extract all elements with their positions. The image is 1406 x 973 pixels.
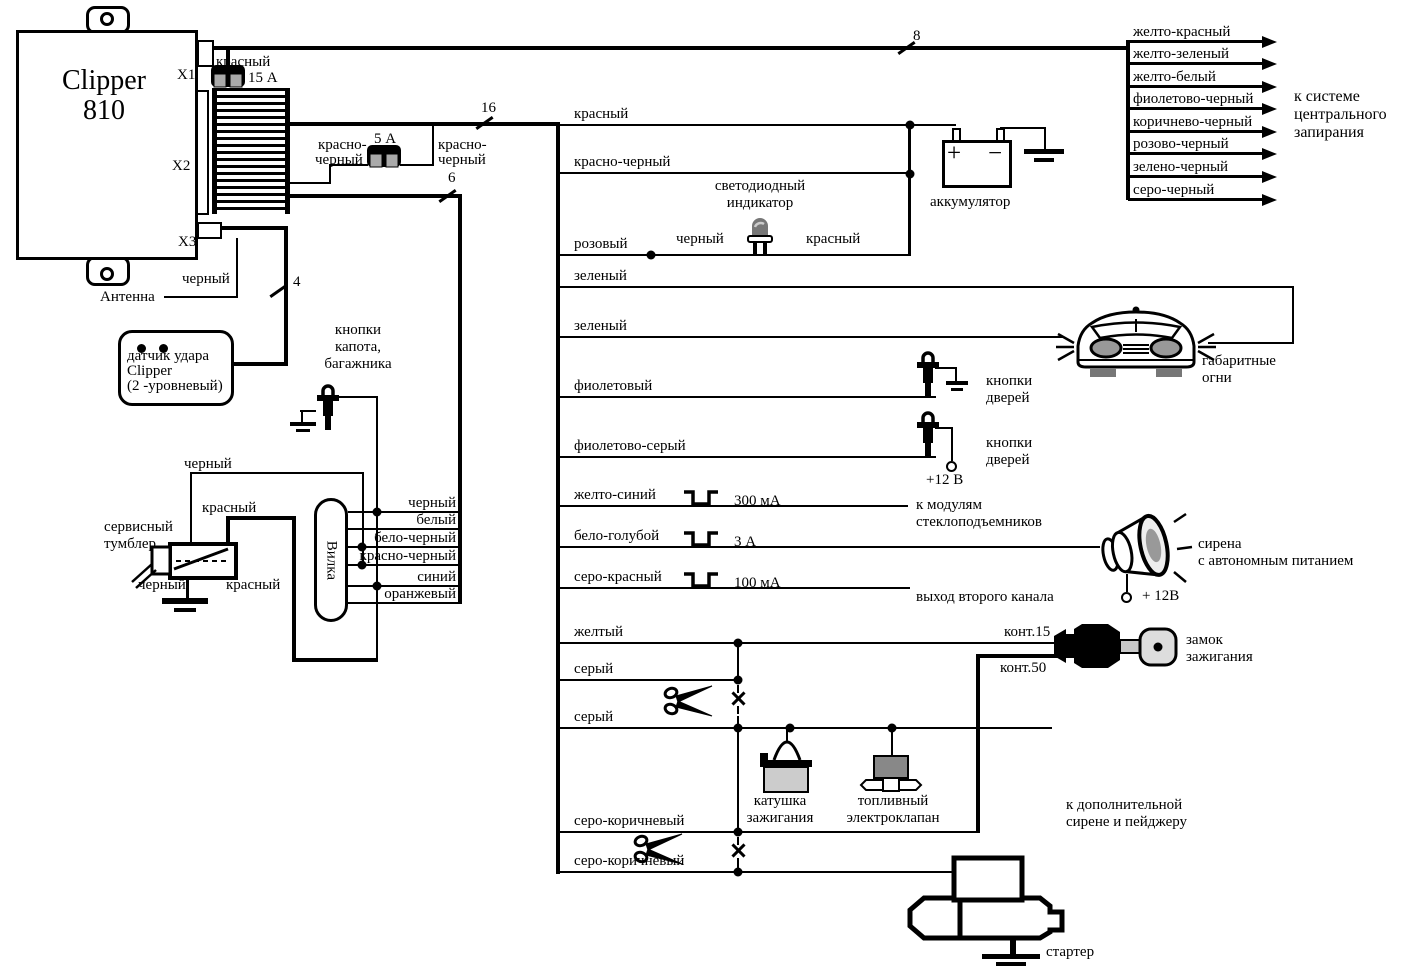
wire-red-black [558, 172, 910, 174]
ribbon-cable-icon [212, 88, 290, 214]
wire-label: черный [315, 152, 363, 169]
windows-label: стеклоподъемников [916, 514, 1042, 531]
wire-label: серый [574, 709, 613, 726]
wire-label: белый [348, 512, 456, 529]
door-buttons-label: кнопки [986, 435, 1032, 452]
wire-label-red: красный [202, 500, 256, 517]
siren-label: с автономным питанием [1198, 553, 1353, 570]
central-lock-label: к системе [1294, 88, 1360, 106]
pulse-icon [682, 530, 722, 548]
arrow-icon [1262, 58, 1277, 70]
door-switch-icon [915, 411, 941, 457]
wire-segment [292, 516, 296, 662]
battery-plus: + [947, 140, 961, 168]
siren-icon [1092, 512, 1196, 600]
fuse-icon [210, 62, 246, 92]
ground-icon [1024, 149, 1064, 154]
wire-label: фиолетово-серый [574, 438, 686, 455]
windows-label: к модулям [916, 497, 982, 514]
wire-red [558, 124, 956, 126]
arrow-icon [1262, 126, 1277, 138]
wire-segment [190, 472, 192, 544]
wire-segment [955, 367, 957, 381]
wire-label: желто-зеленый [1133, 46, 1229, 63]
ground-icon [174, 608, 196, 612]
wire-led [558, 254, 910, 256]
central-lock-label: центрального [1294, 106, 1387, 124]
coil-icon [754, 726, 816, 794]
ignition-lock-icon [1050, 622, 1180, 676]
plus12-contact-icon [1121, 592, 1132, 603]
aux-label: сирене и пейджеру [1066, 814, 1187, 831]
antenna-label: Антенна [100, 289, 155, 306]
ground-icon [946, 381, 968, 385]
wire-label: серо-коричневый [574, 813, 684, 830]
connector-x3 [197, 222, 222, 239]
wire-main-harness [288, 122, 560, 126]
channel2-label: выход второго канала [916, 589, 1054, 606]
plus12-label: +12 В [926, 472, 963, 489]
led-label: индикатор [700, 195, 820, 212]
valve-label: электроклапан [836, 810, 950, 827]
siren-label: сирена [1198, 536, 1242, 553]
cut-dash [737, 858, 739, 866]
ground-icon [1034, 158, 1054, 162]
door-buttons-label: дверей [986, 390, 1029, 407]
wire-plug-harness [288, 194, 462, 198]
wire-label: зелено-черный [1133, 159, 1228, 176]
starter-label: стартер [1046, 944, 1094, 961]
bus-count-16: 16 [481, 100, 496, 117]
junction-dot [734, 676, 743, 685]
ground-icon [162, 598, 208, 604]
wire-label: зеленый [574, 318, 627, 335]
service-toggle-label: сервисный [104, 519, 173, 536]
current-label: 100 мА [734, 575, 781, 592]
wire-red-power [214, 46, 1130, 50]
junction-dot [358, 543, 367, 552]
wire-violet-gray [558, 456, 936, 458]
ignition-lock-label: замок [1186, 632, 1223, 649]
wire-gray-brown [558, 831, 980, 833]
wire-segment [400, 164, 434, 166]
arrow-icon [1262, 103, 1277, 115]
bus-count-6: 6 [448, 170, 456, 187]
wire-plug-bus [458, 194, 462, 604]
wire-segment [432, 126, 434, 166]
wire-segment [292, 658, 378, 662]
arrow-icon [1262, 194, 1277, 206]
ground-icon [290, 422, 316, 426]
wire-label: черный [438, 152, 486, 169]
wire-segment [339, 396, 378, 398]
wire-segment [1208, 342, 1294, 344]
wire-label: красно-черный [574, 154, 670, 171]
wire-label: оранжевый [348, 586, 456, 603]
wire-antenna [236, 238, 238, 298]
wire-segment [1126, 574, 1128, 592]
ground-icon [996, 962, 1026, 966]
wire-label: черный [676, 231, 724, 248]
starter-icon [898, 854, 1068, 960]
cut-dash [737, 685, 739, 693]
wire-sensor-harness [234, 362, 288, 366]
wire-contact50 [976, 654, 980, 833]
led-icon [740, 214, 780, 254]
wire-label: серо-коричневый [574, 853, 684, 870]
wire-segment [288, 182, 330, 184]
junction-dot [906, 121, 915, 130]
valve-label: топливный [836, 793, 950, 810]
wire-label: синий [348, 569, 456, 586]
contact-50-label: конт.50 [1000, 660, 1046, 677]
ground-icon [296, 429, 310, 432]
arrow-icon [1262, 81, 1277, 93]
wire-label: желтый [574, 624, 623, 641]
battery-label: аккумулятор [930, 194, 1010, 211]
connector-x1-label: X1 [177, 67, 195, 84]
wire-label-red: красный [226, 577, 280, 594]
cut-dash [737, 706, 739, 714]
junction-dot [647, 251, 656, 260]
junction-dot [373, 582, 382, 591]
wire-antenna [164, 296, 238, 298]
fuse-5a-label: 5 А [374, 131, 396, 148]
junction-dot [734, 868, 743, 877]
wire-yellow [558, 642, 1058, 644]
plus12-contact-icon [946, 461, 957, 472]
wire-segment [186, 578, 189, 598]
wire-label: коричнево-черный [1133, 114, 1252, 131]
wire-label: красный [574, 106, 628, 123]
wire-label: розово-черный [1133, 136, 1229, 153]
central-lock-label: запирания [1294, 124, 1364, 142]
unit-title: Clipper [29, 65, 179, 96]
wire-segment [226, 516, 296, 520]
junction-dot [358, 561, 367, 570]
wire-label: черный [348, 495, 456, 512]
car-icon [1056, 298, 1216, 384]
wire-label: розовый [574, 236, 628, 253]
wire-label: желто-белый [1133, 69, 1216, 86]
wire-sensor-harness [221, 226, 288, 230]
pulse-icon [682, 571, 722, 589]
wire-segment [301, 410, 303, 422]
fuse-15a-label: 15 А [248, 70, 278, 87]
junction-dot [734, 828, 743, 837]
wire-sensor-harness [284, 226, 288, 366]
arrow-icon [1262, 36, 1277, 48]
hood-buttons-label: багажника [300, 356, 416, 373]
ignition-lock-label: зажигания [1186, 649, 1253, 666]
ground-icon [951, 388, 963, 391]
contact-15-label: конт.15 [1004, 624, 1050, 641]
arrow-icon [1262, 171, 1277, 183]
plus12-label: + 12В [1142, 588, 1179, 605]
wire-green [558, 286, 1294, 288]
door-buttons-label: дверей [986, 452, 1029, 469]
wire-segment [1044, 127, 1046, 149]
current-label: 3 А [734, 534, 756, 551]
coil-label: зажигания [740, 810, 820, 827]
shock-sensor-label: (2 -уровневый) [127, 378, 223, 395]
wire-main-bus [556, 122, 560, 874]
wire-gray [558, 679, 740, 681]
ground-icon [982, 954, 1040, 959]
wire-gray-brown [558, 871, 954, 873]
battery-minus: − [988, 140, 1002, 168]
wire-label-black: черный [184, 456, 232, 473]
wire-label: зеленый [574, 268, 627, 285]
hood-buttons-label: капота, [300, 339, 416, 356]
connector-x3-label: X3 [178, 234, 196, 251]
unit-model: 810 [29, 95, 179, 126]
car-label: огни [1202, 370, 1232, 387]
valve-icon [858, 748, 924, 796]
wire-green [558, 336, 1064, 338]
led-label: светодиодный [700, 178, 820, 195]
plug-label: Вилка [323, 532, 340, 588]
wire-segment [737, 729, 739, 832]
coil-label: катушка [740, 793, 820, 810]
wire-label: желто-красный [1133, 24, 1230, 41]
junction-dot [734, 639, 743, 648]
wire-label-black: черный [138, 577, 186, 594]
wire-label: желто-синий [574, 487, 656, 504]
wire-segment [935, 367, 957, 369]
wire-label: красный [806, 231, 860, 248]
wire-label-black: черный [182, 271, 230, 288]
door-switch-icon [915, 351, 941, 397]
alarm-unit: Clipper 810 [16, 30, 198, 260]
aux-label: к дополнительной [1066, 797, 1182, 814]
screw-hole-icon [100, 12, 114, 26]
car-label: габаритные [1202, 353, 1276, 370]
wire-contact50 [978, 654, 1060, 658]
wire-yellow-blue [558, 505, 908, 507]
wire-label: серо-красный [574, 569, 662, 586]
door-buttons-label: кнопки [986, 373, 1032, 390]
hood-switch-icon [315, 384, 341, 430]
junction-dot [906, 170, 915, 179]
wire-segment [190, 472, 364, 474]
pulse-icon [682, 489, 722, 507]
wire-segment [951, 427, 953, 461]
wire-label: бело-голубой [574, 528, 659, 545]
junction-dot [373, 508, 382, 517]
cut-dash [737, 837, 739, 845]
wire-label: серый [574, 661, 613, 678]
current-label: 300 мА [734, 493, 781, 510]
wire-label: фиолетовый [574, 378, 652, 395]
wire-segment [1292, 286, 1294, 344]
bus-count-4: 4 [293, 274, 301, 291]
screw-hole-icon [100, 267, 114, 281]
wire-label: серо-черный [1133, 182, 1214, 199]
wire-label: фиолетово-черный [1133, 91, 1253, 108]
connector-x2-label: X2 [172, 158, 190, 175]
wire-segment [908, 124, 911, 256]
wiring-diagram: Clipper 810 X1 X2 X3 красный 15 А 8 5 А … [0, 0, 1406, 973]
wire-white-blue [558, 546, 1100, 548]
connector-x2 [196, 90, 209, 215]
arrow-icon [1262, 148, 1277, 160]
wire-violet [558, 396, 936, 398]
hood-buttons-label: кнопки [300, 322, 416, 339]
wire-segment [1000, 127, 1046, 129]
scissors-icon [664, 682, 716, 720]
